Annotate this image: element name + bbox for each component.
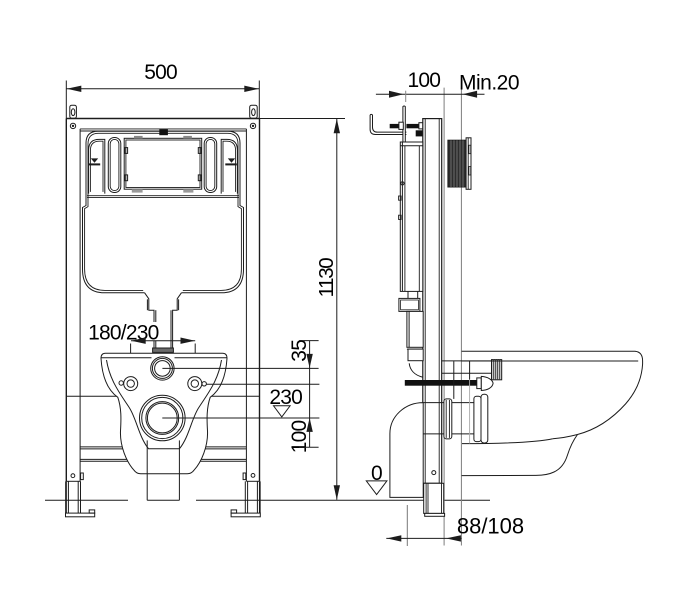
svg-text:0: 0 (371, 462, 383, 485)
svg-text:1130: 1130 (315, 258, 338, 298)
svg-text:100: 100 (407, 69, 440, 92)
svg-text:88/108: 88/108 (457, 514, 524, 539)
svg-text:Min.20: Min.20 (459, 72, 519, 95)
svg-text:100: 100 (288, 420, 311, 453)
svg-text:500: 500 (144, 61, 177, 84)
